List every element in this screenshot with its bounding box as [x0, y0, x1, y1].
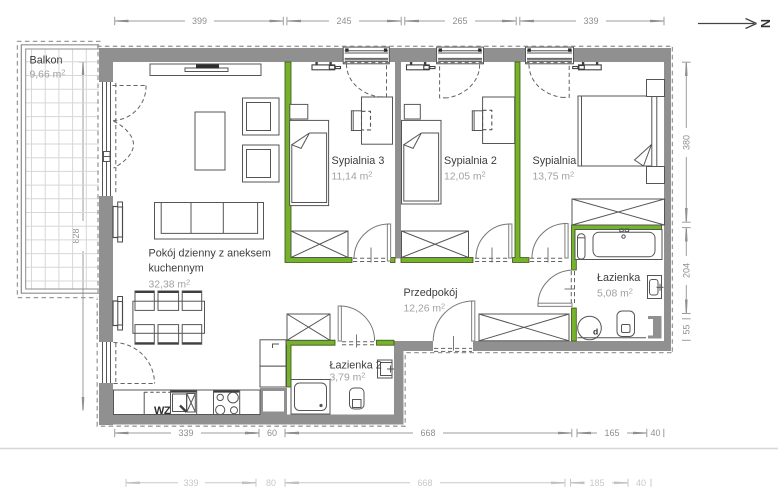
svg-text:32,38 m2: 32,38 m2 [149, 277, 191, 290]
svg-text:80: 80 [266, 478, 276, 488]
svg-text:Pokój dzienny z aneksem: Pokój dzienny z aneksem [149, 248, 271, 260]
svg-text:Przedpokój: Przedpokój [404, 287, 458, 299]
svg-text:339: 339 [178, 428, 193, 438]
svg-text:265: 265 [452, 16, 467, 26]
svg-text:Balkon: Balkon [30, 55, 63, 67]
svg-text:d: d [593, 327, 598, 337]
svg-text:40: 40 [636, 478, 646, 488]
svg-text:Łazienka 2: Łazienka 2 [330, 360, 382, 372]
svg-text:339: 339 [583, 16, 598, 26]
svg-text:60: 60 [267, 428, 277, 438]
svg-text:Łazienka: Łazienka [597, 272, 640, 284]
svg-text:3,79 m2: 3,79 m2 [330, 370, 366, 383]
svg-text:12,05 m2: 12,05 m2 [444, 169, 486, 182]
svg-text:185: 185 [589, 478, 604, 488]
svg-text:204: 204 [682, 263, 692, 278]
svg-text:Sypialnia: Sypialnia [533, 155, 577, 167]
svg-text:N: N [758, 19, 772, 28]
svg-text:380: 380 [682, 135, 692, 150]
svg-text:Sypialnia 2: Sypialnia 2 [444, 155, 497, 167]
svg-text:Sypialnia 3: Sypialnia 3 [332, 155, 385, 167]
svg-text:339: 339 [183, 478, 198, 488]
svg-text:55: 55 [682, 324, 692, 334]
svg-text:11,14 m2: 11,14 m2 [332, 169, 373, 182]
svg-text:9,66 m2: 9,66 m2 [30, 67, 66, 80]
svg-text:12,26 m2: 12,26 m2 [404, 301, 446, 314]
svg-text:40: 40 [650, 428, 660, 438]
svg-text:399: 399 [192, 16, 207, 26]
svg-text:13,75 m2: 13,75 m2 [533, 169, 575, 182]
svg-text:668: 668 [420, 428, 435, 438]
svg-text:165: 165 [604, 428, 619, 438]
svg-text:WZ: WZ [154, 405, 171, 417]
svg-text:5,08 m2: 5,08 m2 [597, 286, 633, 299]
svg-text:668: 668 [417, 478, 432, 488]
svg-text:kuchennym: kuchennym [149, 263, 204, 275]
svg-text:245: 245 [336, 16, 351, 26]
